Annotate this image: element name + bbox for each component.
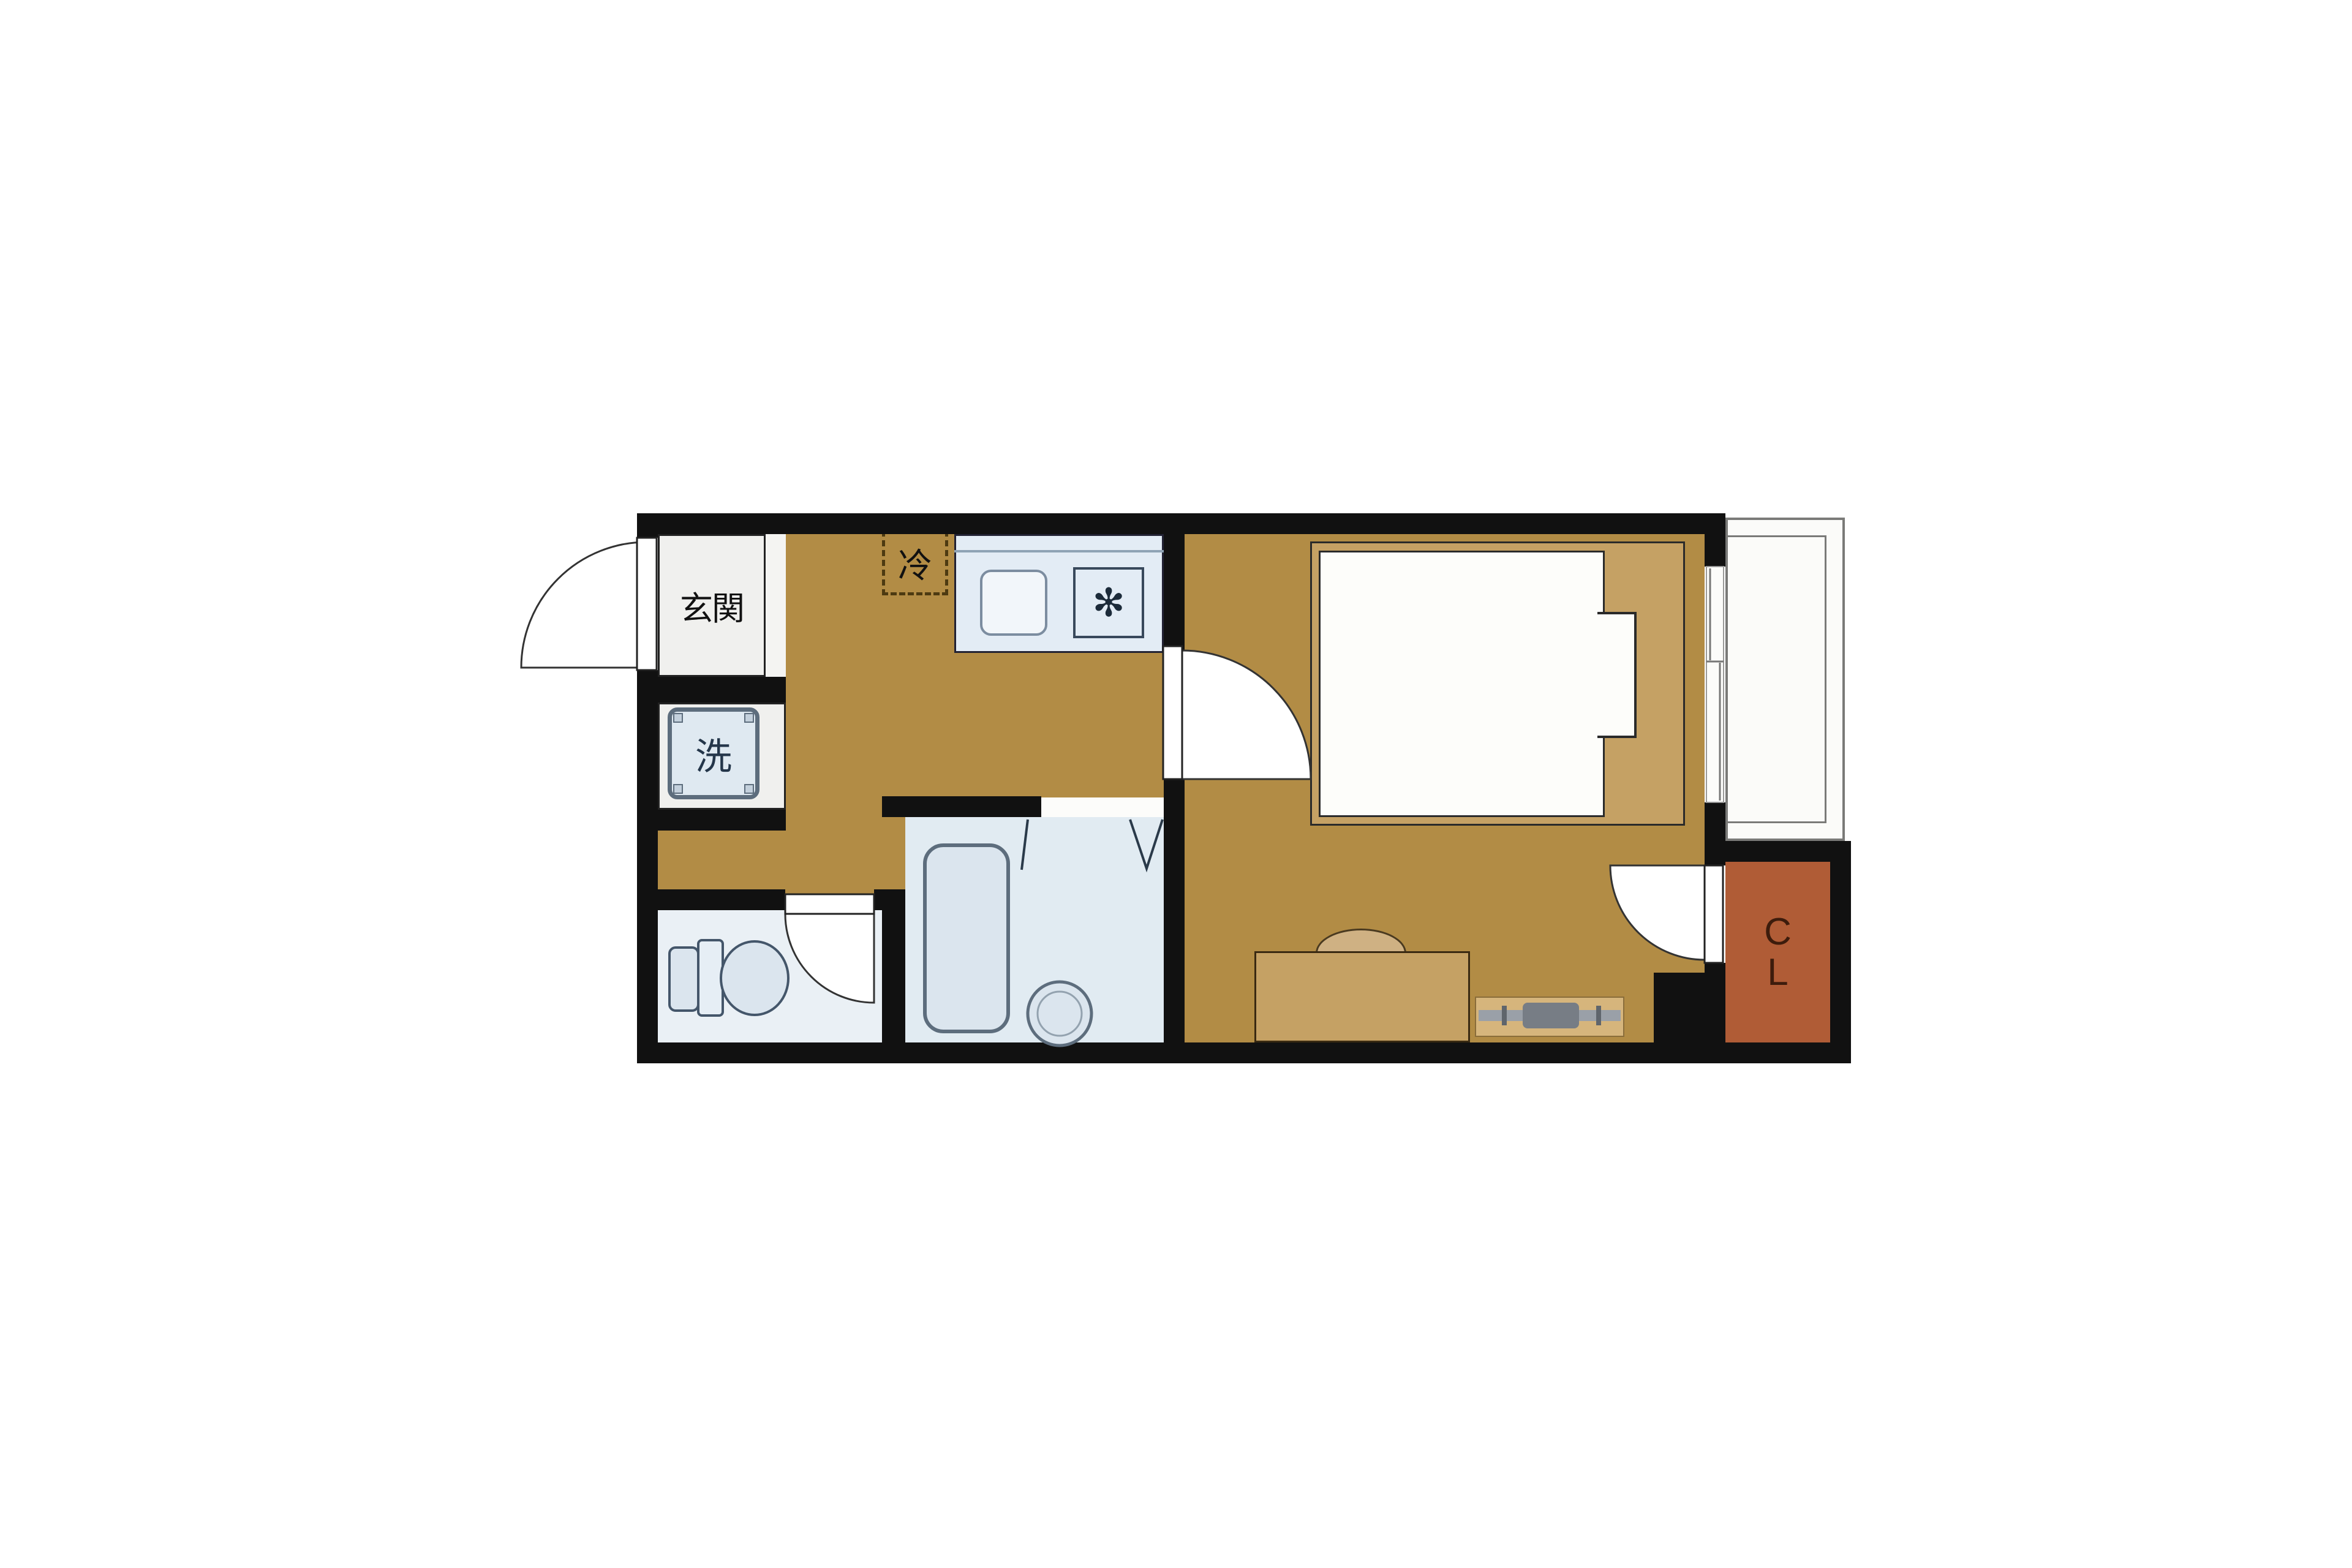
washer-label: 洗 — [695, 727, 732, 780]
toilet-door-arc — [785, 914, 874, 1003]
bath-door-threshold — [1041, 797, 1164, 817]
bedroom-door-leaf — [1163, 646, 1182, 779]
washer-corner — [673, 784, 683, 794]
floor-plan: ✻ 冷 C L — [0, 0, 2352, 1568]
bedroom-door-arc — [1182, 650, 1311, 779]
entrance-door-leaf — [637, 538, 657, 670]
closet-door-leaf — [1705, 865, 1723, 963]
bathtub-icon — [925, 845, 1008, 1031]
closet-door-arc — [1610, 865, 1705, 960]
toilet-seat-icon — [698, 940, 723, 1016]
washer-corner — [673, 713, 683, 723]
washer-corner — [744, 713, 754, 723]
entrance-label: 玄関 — [658, 534, 766, 677]
washing-machine-icon: 洗 — [668, 707, 759, 799]
toilet-door-leaf — [785, 894, 874, 914]
balcony-window — [1706, 567, 1724, 802]
fixtures-overlay — [0, 0, 2352, 1568]
toilet-tank-icon — [669, 948, 698, 1011]
entrance-door-arc — [521, 542, 647, 668]
toilet-bowl-icon — [721, 941, 788, 1015]
bath-fold-door-edge — [1022, 820, 1028, 870]
washer-corner — [744, 784, 754, 794]
bath-fold-door-icon — [1130, 820, 1163, 869]
